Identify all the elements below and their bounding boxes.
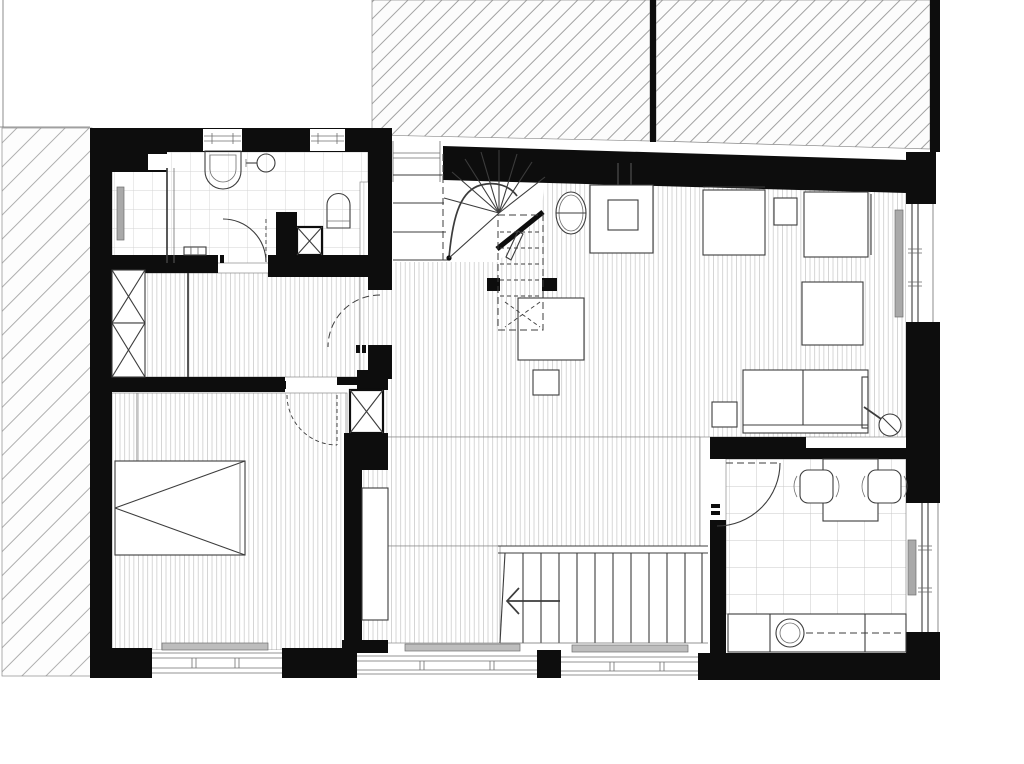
living-radiator: [895, 210, 903, 317]
main-stair-edge-left: [500, 553, 505, 643]
wall-stub-stair-right: [542, 278, 557, 291]
hall-door-hinge1: [356, 345, 360, 353]
window-south-living: [357, 653, 537, 677]
bathroom-wall-niche: [148, 154, 168, 170]
duct-pillar-top: [357, 370, 388, 390]
bed: [115, 461, 245, 555]
window-south-stair: [561, 654, 698, 678]
leaning-panel: [362, 488, 388, 620]
wall-bathroom-south-right: [268, 255, 392, 277]
neighbor-hatch-left-strip: [2, 128, 92, 676]
cabinet-square-c: [804, 192, 868, 257]
bedroom-door-hinge2: [282, 381, 286, 389]
neighbor-hatch-top-left-block: [372, 0, 650, 141]
square-table-pendant: [590, 185, 653, 253]
neighbor-hatch-top-right-block: [656, 0, 930, 149]
plan-shapes-layer: [0, 0, 940, 680]
wall-east-top: [906, 152, 936, 204]
cabinet-square-b: [774, 198, 797, 225]
window-east-living: [906, 204, 936, 322]
wall-east-mid: [906, 322, 940, 503]
wall-west: [90, 128, 112, 676]
bathroom-radiator: [117, 187, 124, 240]
wall-south-pier-bedroom: [282, 648, 357, 678]
hall-floor-planks: [112, 273, 368, 377]
window-sill-stair: [572, 645, 688, 652]
floor-plan-drawing: [0, 0, 1024, 764]
office-chair-2: [868, 470, 901, 503]
wall-bathroom-wc-divider: [276, 212, 297, 256]
bathroom-door-hinge2: [220, 255, 224, 263]
wall-southwest-corner: [90, 648, 152, 678]
party-wall-divider-top: [650, 0, 656, 142]
wall-office-west-top: [710, 437, 726, 459]
wall-south-office: [698, 653, 940, 680]
window-north-b: [310, 129, 345, 151]
duct-pillar-mid: [344, 433, 388, 470]
bedroom-door-hinge1: [276, 381, 280, 389]
side-table: [712, 402, 737, 427]
window-stairwell: [392, 139, 441, 183]
wall-living-west: [344, 470, 362, 640]
window-south-bedroom: [152, 650, 282, 676]
office-chair-1: [800, 470, 833, 503]
wall-bedroom-north-right: [337, 377, 358, 385]
daybed-sofa: [743, 370, 868, 433]
floor-plan-page: [0, 0, 1024, 764]
office-door-hinge2: [711, 511, 720, 515]
wall-bedroom-north-left: [95, 377, 285, 392]
wall-office-north-thick: [716, 437, 806, 459]
office-radiator: [908, 540, 916, 595]
bathroom-door-hinge1: [214, 255, 218, 263]
window-sill-living: [405, 644, 520, 651]
window-sill-bedroom: [162, 643, 268, 650]
coffee-table-large: [518, 298, 584, 360]
wall-south-pier-stair: [537, 650, 561, 678]
wall-office-west-bottom: [710, 520, 726, 653]
living-floor-planks-mid: [360, 437, 700, 546]
cabinet-square-a: [703, 190, 765, 255]
office-door-hinge1: [711, 504, 720, 508]
cabinet-square-d: [802, 282, 863, 345]
wall-office-north-thin: [806, 448, 906, 459]
party-wall-bar-top-right: [930, 0, 940, 152]
window-north-a: [203, 129, 242, 151]
coffee-table-small: [533, 370, 559, 395]
hall-door-hinge2: [362, 345, 366, 353]
